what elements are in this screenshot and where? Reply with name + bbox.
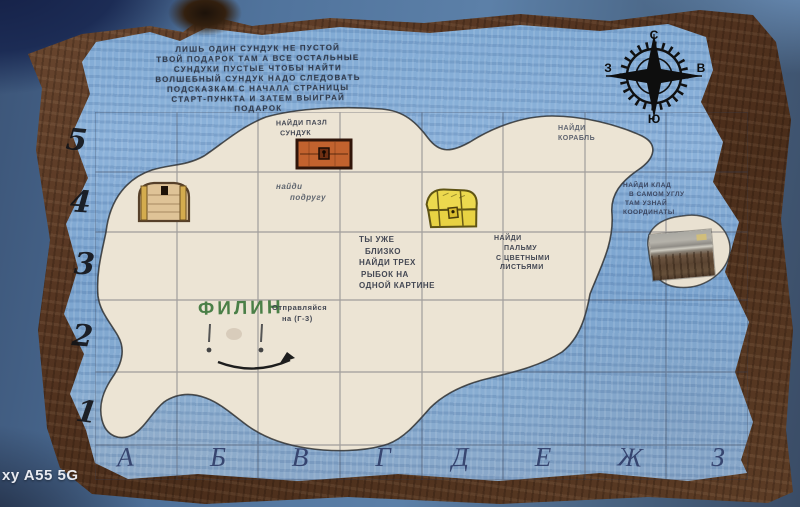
treasure-map-photo: ЛИШЬ ОДИН СУНДУК НЕ ПУСТОЙ ТВОЙ ПОДАРОК …	[0, 0, 800, 507]
clue-line: найди	[276, 181, 326, 192]
col-label-g: Г	[375, 444, 390, 471]
photo-chest-wood-texture	[651, 250, 715, 281]
photo-chest	[649, 229, 715, 280]
col-label-b: Б	[210, 444, 226, 471]
legend-text: ЛИШЬ ОДИН СУНДУК НЕ ПУСТОЙ ТВОЙ ПОДАРОК …	[112, 42, 405, 115]
clue-friend: найди подругу	[276, 181, 326, 203]
row-label-4: 4	[69, 187, 92, 218]
col-label-a: А	[116, 444, 134, 472]
clue-palm: НАЙДИ ПАЛЬМУ С ЦВЕТНЫМИ ЛИСТЬЯМИ	[494, 234, 550, 273]
compass-east-label: В	[697, 61, 706, 75]
yellow-chest-icon	[418, 181, 482, 233]
clue-treasure-corner: НАЙДИ КЛАД В САМОМ УГЛУ ТАМ УЗНАЙ КООРДИ…	[623, 181, 685, 217]
col-label-z: З	[711, 444, 724, 471]
clue-line: ОДНОЙ КАРТИНЕ	[359, 280, 435, 292]
clue-line: Отправляйся	[272, 303, 327, 314]
clue-line: ПАЛЬМУ	[504, 244, 550, 254]
clue-line: С ЦВЕТНЫМИ	[496, 254, 550, 264]
col-label-d: Д	[451, 444, 469, 472]
clue-line: НАЙДИ КЛАД	[623, 181, 685, 190]
clue-line: ТАМ УЗНАЙ	[625, 199, 685, 208]
clue-ship: НАЙДИ КОРАБЛЬ	[558, 124, 595, 144]
col-label-v: В	[291, 444, 308, 472]
compass-rose-icon: С В Ю З	[602, 28, 706, 124]
row-label-3: 3	[73, 249, 95, 280]
clue-line: НАЙДИ	[558, 124, 595, 134]
orange-chest-icon	[295, 138, 353, 170]
clue-line: НАЙДИ ПАЗЛ	[276, 119, 327, 130]
owl-face-arrow-icon	[196, 320, 316, 376]
col-label-e: Е	[535, 444, 552, 471]
row-label-2: 2	[71, 321, 94, 353]
col-label-zh: Ж	[617, 443, 643, 471]
row-label-1: 1	[74, 397, 99, 430]
photo-chest-glint	[696, 234, 706, 241]
clue-line: ЛИСТЬЯМИ	[500, 263, 550, 273]
clue-line: КООРДИНАТЫ	[623, 208, 685, 217]
clue-three-fish: ТЫ УЖЕ БЛИЗКО НАЙДИ ТРЕХ РЫБОК НА ОДНОЙ …	[359, 234, 435, 292]
compass-west-label: З	[604, 61, 612, 75]
clue-line: БЛИЗКО	[365, 246, 435, 258]
clue-line: РЫБОК НА	[361, 269, 435, 281]
compass-north-label: С	[650, 28, 659, 42]
tan-chest-icon	[132, 177, 196, 227]
clue-line: подругу	[290, 192, 326, 203]
clue-line: В САМОМ УГЛУ	[629, 190, 685, 199]
compass-south-label: Ю	[648, 112, 660, 124]
clue-puzzle-chest: НАЙДИ ПАЗЛ СУНДУК	[276, 119, 328, 139]
clue-line: КОРАБЛЬ	[558, 134, 595, 144]
clue-line: НАЙДИ	[494, 234, 550, 244]
camera-watermark: xy A55 5G	[2, 468, 79, 483]
clue-line: ТЫ УЖЕ	[359, 234, 435, 246]
row-label-5: 5	[64, 125, 88, 157]
clue-owl-label: ФИЛИН	[198, 298, 284, 318]
clue-line: НАЙДИ ТРЕХ	[359, 257, 435, 269]
